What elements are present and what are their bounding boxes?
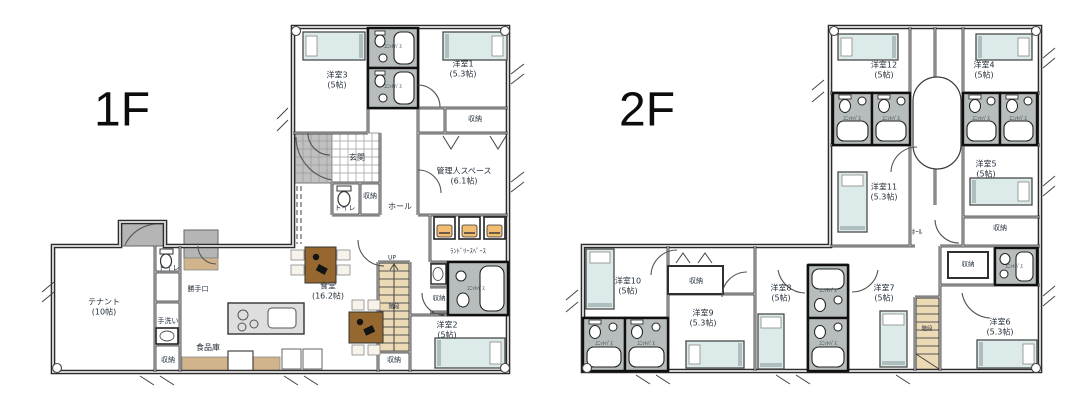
toilet: [815, 299, 826, 312]
room-size: (5.3帖): [987, 327, 1014, 337]
sink: [834, 323, 842, 331]
room-size: (5帖): [873, 293, 894, 303]
label-unit-bath: ﾕﾆｯﾄﾊﾞｽ: [819, 341, 837, 347]
label-hall: ﾎｰﾙ: [912, 228, 923, 236]
hall-door-capsule: [913, 77, 961, 169]
label-stairs: 階段: [921, 327, 932, 334]
sink: [987, 97, 995, 105]
bathtub: [837, 121, 868, 141]
genkan-porch-tiles: [295, 133, 332, 183]
label-closet: 収納: [689, 277, 703, 285]
bed: [443, 32, 507, 60]
sink: [456, 271, 466, 281]
handwash-sink: [156, 328, 178, 344]
room-name: 洋室8: [770, 283, 791, 293]
room-size: (5帖): [436, 330, 457, 340]
sink: [834, 296, 842, 304]
label-closet: 収納: [433, 295, 446, 303]
sink: [1024, 97, 1032, 105]
toilet: [457, 293, 469, 307]
label-closet: 収納: [387, 356, 401, 364]
bathtub: [587, 347, 621, 367]
room-size: (5.3帖): [871, 192, 898, 202]
sink: [858, 97, 866, 105]
label-unit-bath: ﾕﾆｯﾄﾊﾞｽ: [384, 44, 402, 50]
label-up: UP: [388, 254, 396, 261]
label-youshitsu3: 洋室3(5帖): [326, 70, 347, 89]
bed: [976, 34, 1032, 60]
room-name: 洋室1: [450, 59, 477, 69]
label-kanrinin: 管理人スペース(6.1帖): [436, 166, 491, 185]
bathtub: [876, 121, 906, 141]
label-toilet: トイレ: [335, 204, 356, 212]
floor1-title: 1F: [94, 83, 150, 138]
sink: [897, 97, 905, 105]
label-unit-bath: ﾕﾆｯﾄﾊﾞｽ: [882, 116, 900, 122]
kitchen-counter: [228, 303, 304, 334]
label-unit-bath: ﾕﾆｯﾄﾊﾞｽ: [467, 286, 485, 292]
closet-box: [668, 253, 723, 294]
room-name: 洋室12: [871, 60, 897, 70]
label-closet: 収納: [468, 115, 482, 123]
toilet: [879, 100, 890, 113]
toilet: [840, 100, 851, 113]
floor2-title: 2F: [619, 83, 675, 138]
room-size: (5帖): [615, 286, 641, 296]
label-tenant: テナント(10帖): [88, 297, 120, 316]
label-pantry: 食品庫: [196, 343, 220, 353]
stairs-2f: [916, 298, 939, 370]
label-unit-bath: ﾕﾆｯﾄﾊﾞｽ: [1009, 116, 1027, 122]
room-size: (5.3帖): [450, 69, 477, 79]
label-youshitsu6: 洋室6(5.3帖): [987, 317, 1014, 336]
toilet: [815, 326, 826, 339]
toilet: [1000, 254, 1010, 265]
room-size: (5帖): [973, 70, 994, 80]
refrigerator: [228, 351, 253, 372]
label-unit-bath: ﾕﾆｯﾄﾊﾞｽ: [843, 116, 861, 122]
label-laundry: ﾗﾝﾄﾞﾘｰｽﾍﾟｰｽ: [450, 248, 486, 256]
sink: [379, 54, 387, 62]
sink: [1000, 270, 1008, 278]
toilet: [970, 100, 981, 113]
room-size: (5.3帖): [690, 318, 717, 328]
floorplan-canvas: 1F 2F 洋室3(5帖) 洋室1(5.3帖) 収納 管理人スペース(6.1帖)…: [0, 0, 1079, 402]
bathtub: [1004, 121, 1033, 141]
room-size: (16.2帖): [312, 291, 344, 301]
label-unit-bath: ﾕﾆｯﾄﾊﾞｽ: [819, 288, 837, 294]
label-unit-bath: ﾕﾆｯﾄﾊﾞｽ: [637, 341, 655, 347]
label-youshitsu9: 洋室9(5.3帖): [690, 308, 717, 327]
label-toilet: トイレ: [159, 264, 180, 272]
room-name: 洋室4: [973, 60, 994, 70]
label-stairs: 階段: [388, 305, 399, 312]
label-handwash: 手洗い: [158, 317, 179, 325]
bed: [838, 172, 867, 232]
toilet: [590, 326, 601, 339]
bathtub: [812, 269, 844, 289]
label-unit-bath: ﾕﾆｯﾄﾊﾞｽ: [595, 341, 613, 347]
label-youshitsu11: 洋室11(5.3帖): [871, 182, 898, 201]
bed: [686, 341, 744, 368]
sink: [652, 323, 660, 331]
room-name: 洋室6: [987, 317, 1014, 327]
dining-table-set: [349, 300, 383, 355]
room-size: (5帖): [975, 169, 996, 179]
label-youshitsu2: 洋室2(5帖): [436, 320, 457, 339]
bed: [970, 178, 1032, 205]
room-name: 食堂: [312, 281, 344, 291]
washing-machine: [434, 217, 455, 239]
label-closet: 収納: [161, 356, 175, 364]
label-closet: 収納: [962, 261, 975, 269]
room-name: 洋室5: [975, 159, 996, 169]
bed: [880, 311, 907, 367]
sink: [379, 94, 387, 102]
room-name: 洋室2: [436, 320, 457, 330]
bathtub: [629, 347, 664, 367]
room-name: 洋室7: [873, 283, 894, 293]
room-name: 洋室10: [615, 276, 641, 286]
bed: [838, 34, 898, 60]
label-unit-bath: ﾕﾆｯﾄﾊﾞｽ: [972, 116, 990, 122]
bed: [758, 314, 784, 369]
room-size: (5帖): [871, 70, 897, 80]
label-unit-bath: ﾕﾆｯﾄﾊﾞｽ: [1005, 264, 1023, 270]
room-name: テナント: [88, 297, 120, 307]
label-hall: ホール: [388, 202, 412, 212]
hanger-marks: [443, 136, 506, 149]
room-name: 洋室11: [871, 182, 898, 192]
label-youshitsu10: 洋室10(5帖): [615, 276, 641, 295]
toilet: [1007, 100, 1018, 113]
label-closet: 収納: [363, 192, 377, 200]
dining-table-set: [291, 247, 350, 283]
bed: [303, 32, 365, 60]
label-youshitsu5: 洋室5(5帖): [975, 159, 996, 178]
bench-seat: [282, 349, 301, 369]
label-genkan: 玄関: [349, 153, 365, 163]
label-unit-bath: ﾕﾆｯﾄﾊﾞｽ: [384, 84, 402, 90]
sink: [609, 323, 617, 331]
room-size: (5帖): [770, 293, 791, 303]
bed: [977, 340, 1037, 368]
floorplan-drawing: [0, 0, 1079, 402]
toilet: [632, 326, 643, 339]
bed: [435, 338, 505, 368]
bathtub: [812, 347, 844, 367]
washing-machine: [459, 217, 480, 239]
tenant-entry-porch: [120, 222, 165, 246]
label-dining: 食堂(16.2帖): [312, 281, 344, 300]
laundry-sink: [431, 264, 446, 284]
room-size: (6.1帖): [436, 176, 491, 186]
room-name: 洋室3: [326, 70, 347, 80]
room-size: (10帖): [88, 307, 120, 317]
bed: [586, 249, 614, 309]
bathtub: [967, 121, 996, 141]
label-youshitsu7: 洋室7(5帖): [873, 283, 894, 302]
label-backdoor: 勝手口: [188, 285, 209, 293]
room-name: 管理人スペース: [436, 166, 491, 176]
label-closet: 収納: [993, 224, 1007, 232]
label-youshitsu1: 洋室1(5.3帖): [450, 59, 477, 78]
label-youshitsu4: 洋室4(5帖): [973, 60, 994, 79]
label-youshitsu12: 洋室12(5帖): [871, 60, 897, 79]
room-size: (5帖): [326, 80, 347, 90]
washing-machine: [484, 217, 505, 239]
room-name: 洋室9: [690, 308, 717, 318]
label-youshitsu8: 洋室8(5帖): [770, 283, 791, 302]
bench-seat: [303, 349, 322, 369]
